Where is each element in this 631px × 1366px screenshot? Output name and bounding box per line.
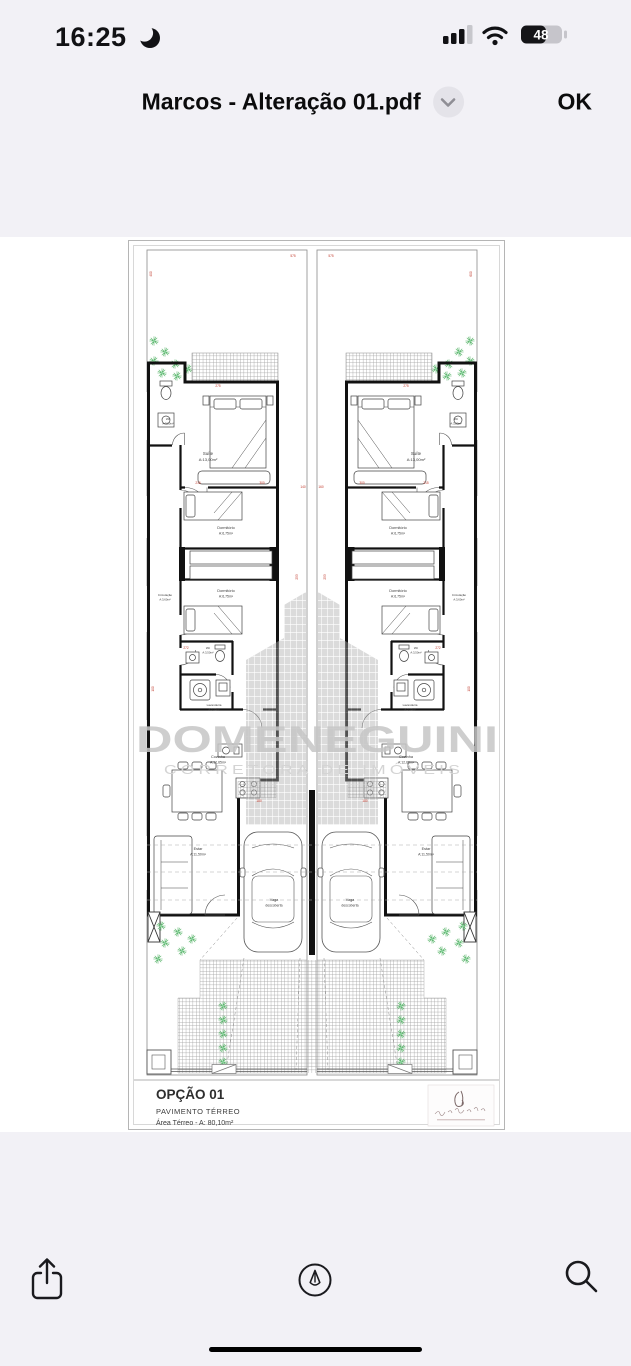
dimension-label: 575 xyxy=(290,254,296,258)
room-area-label: A:3,60m² xyxy=(159,598,170,602)
room-area-label: A:11,50m² xyxy=(190,852,207,856)
share-icon xyxy=(28,1256,66,1302)
search-icon xyxy=(563,1258,600,1295)
dimension-label: 300 xyxy=(259,481,265,485)
dimension-label: 300 xyxy=(359,481,365,485)
room-area-label: descoberta xyxy=(265,903,282,907)
dimension-label: 600 xyxy=(469,271,473,277)
dimension-label: 180 xyxy=(256,799,262,803)
status-icons: 48 xyxy=(443,22,593,48)
room-area-label: A:12,65m² xyxy=(210,760,227,764)
wifi-icon xyxy=(484,28,506,45)
room-label: Cozinha xyxy=(399,755,414,759)
room-area-label: A:3,20m² xyxy=(162,422,173,426)
room-area-label: A:3,35m² xyxy=(208,708,219,712)
search-button[interactable] xyxy=(563,1258,600,1295)
dimension-label: 253 xyxy=(295,574,299,580)
room-label: Lavanderia xyxy=(207,703,222,707)
dimension-label: 140 xyxy=(300,485,306,489)
room-label: Circulação xyxy=(158,593,173,597)
home-indicator[interactable] xyxy=(209,1347,422,1352)
dimension-label: 180 xyxy=(362,799,368,803)
markup-icon xyxy=(295,1260,335,1300)
markup-button[interactable] xyxy=(295,1260,335,1300)
room-label: Lavanderia xyxy=(403,703,418,707)
room-label: Circulação xyxy=(452,593,467,597)
room-area-label: A:12,65m² xyxy=(398,760,415,764)
dimension-label: 272 xyxy=(183,646,189,650)
chevron-down-icon xyxy=(440,97,456,107)
room-label: Wc xyxy=(454,417,459,421)
floorplan-drawing: DOMENEGUINI CORRETORA DE IMÓVEIS OPÇÃO 0… xyxy=(128,240,505,1130)
cellular-signal-icon xyxy=(443,25,473,44)
room-label: Vaga xyxy=(270,898,279,902)
room-label: Suíte xyxy=(203,451,214,456)
room-label: Wc xyxy=(414,646,419,650)
room-label: Estar xyxy=(194,847,204,851)
pdf-page[interactable]: DOMENEGUINI CORRETORA DE IMÓVEIS OPÇÃO 0… xyxy=(0,237,631,1132)
ok-button[interactable]: OK xyxy=(552,88,599,117)
dimension-label: 275 xyxy=(215,384,221,388)
dimension-label: 575 xyxy=(328,254,334,258)
share-button[interactable] xyxy=(28,1256,66,1302)
bottom-toolbar xyxy=(0,1238,631,1328)
watermark-name: DOMENEGUINI xyxy=(136,719,498,760)
room-label: Dormitório xyxy=(389,589,407,593)
plan-option-label: OPÇÃO 01 xyxy=(156,1087,225,1102)
room-area-label: descoberta xyxy=(341,903,358,907)
room-area-label: A:3,20m² xyxy=(450,422,461,426)
dimension-label: 275 xyxy=(403,384,409,388)
dimension-label: 160 xyxy=(318,485,324,489)
moon-icon xyxy=(137,24,163,50)
room-label: Suíte xyxy=(411,451,422,456)
battery-percent-label: 48 xyxy=(533,28,549,43)
room-label: Estar xyxy=(422,847,432,851)
room-area-label: A:13,00m² xyxy=(199,457,218,462)
architect-signature xyxy=(428,1085,494,1126)
header: Marcos - Alteração 01.pdf OK xyxy=(0,62,631,142)
room-area-label: A:6,75m² xyxy=(391,594,406,598)
room-area-label: A:11,50m² xyxy=(418,852,435,856)
title-menu-button[interactable] xyxy=(433,87,464,118)
dimension-label: 272 xyxy=(435,646,441,650)
room-label: Cozinha xyxy=(211,755,226,759)
status-bar: 16:25 48 xyxy=(0,0,631,62)
room-label: Wc xyxy=(166,417,171,421)
room-area-label: A:6,75m² xyxy=(391,531,406,535)
room-label: Dormitório xyxy=(389,526,407,530)
room-area-label: A:6,75m² xyxy=(219,531,234,535)
room-area-label: A:3,35m² xyxy=(404,708,415,712)
dimension-label: 100 xyxy=(467,686,471,692)
room-area-label: A:13,00m² xyxy=(407,457,426,462)
room-area-label: A:3,50m² xyxy=(202,651,213,655)
room-label: Dormitório xyxy=(217,589,235,593)
room-area-label: A:3,50m² xyxy=(410,651,421,655)
room-label: Dormitório xyxy=(217,526,235,530)
dimension-label: 215 xyxy=(423,481,429,485)
room-label: Wc xyxy=(206,646,211,650)
document-title: Marcos - Alteração 01.pdf xyxy=(142,89,421,116)
dimension-label: 100 xyxy=(151,686,155,692)
room-area-label: A:3,60m² xyxy=(453,598,464,602)
room-area-label: A:6,75m² xyxy=(219,594,234,598)
clock-label: 16:25 xyxy=(55,22,127,53)
battery-icon: 48 xyxy=(521,26,567,44)
dimension-label: 215 xyxy=(195,481,201,485)
plan-area-label: Área Térreo - A: 80,10m² xyxy=(156,1118,234,1127)
dimension-label: 253 xyxy=(323,574,327,580)
plan-level-label: PAVIMENTO TÉRREO xyxy=(156,1107,240,1116)
dimension-label: 400 xyxy=(149,271,153,277)
room-label: Vaga xyxy=(346,898,355,902)
